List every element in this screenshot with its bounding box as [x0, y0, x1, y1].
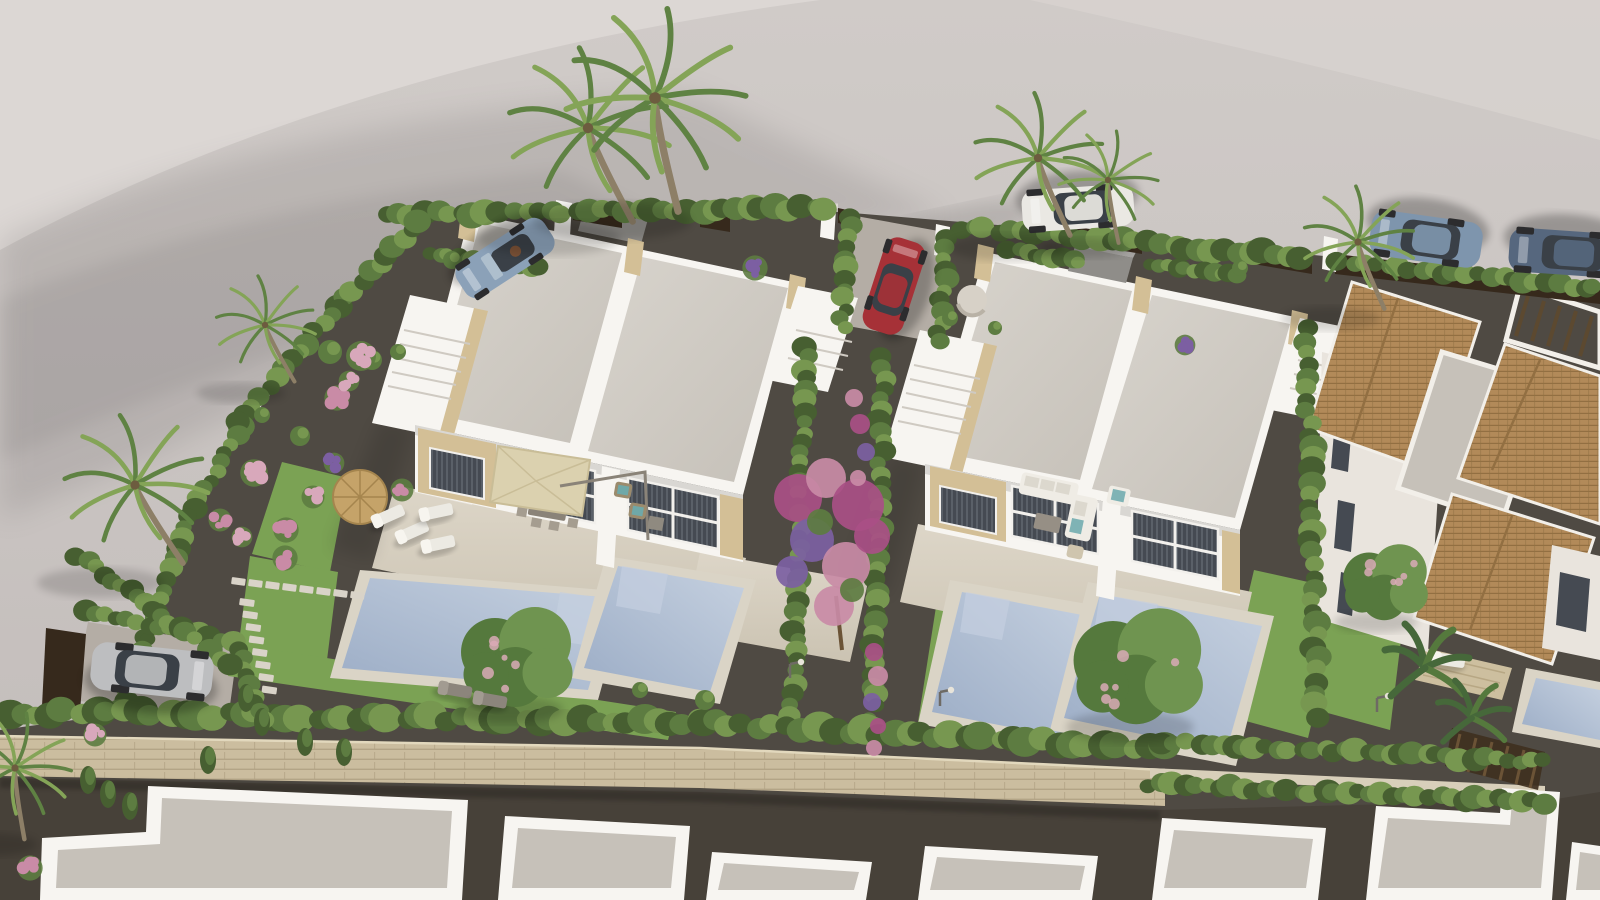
- hedge-bush: [368, 704, 402, 733]
- bougainvillea-bloom: [854, 518, 890, 554]
- flower-bloom: [750, 264, 760, 274]
- tree-blossom: [482, 667, 494, 679]
- flower-bloom: [304, 488, 312, 496]
- palm-shadow: [1282, 307, 1381, 330]
- bougainvillea-bloom: [868, 666, 888, 686]
- bottom-house-roof-inner: [1164, 830, 1313, 888]
- bush-highlight: [948, 311, 957, 320]
- bougainvillea-bloom: [807, 509, 833, 535]
- hedge-bush: [1305, 556, 1324, 572]
- palm-shadow: [197, 383, 285, 404]
- car-wheel: [1513, 265, 1531, 273]
- flower-bloom: [364, 346, 376, 358]
- flower-bloom: [395, 483, 404, 492]
- chair-cushion: [617, 485, 629, 496]
- dining-chair: [567, 518, 578, 529]
- bush-highlight: [298, 428, 309, 439]
- flower-bloom: [324, 452, 334, 462]
- cypress-highlight: [85, 767, 95, 785]
- car-roof: [1411, 223, 1453, 256]
- aerial-render: [0, 0, 1600, 900]
- bougainvillea-bloom: [857, 443, 875, 461]
- tree-canopy: [1345, 578, 1379, 612]
- hedge-bush: [1534, 752, 1551, 766]
- cypress-highlight: [127, 793, 137, 811]
- lamp-head: [948, 687, 954, 693]
- tree-blossom: [511, 660, 520, 669]
- flower-bloom: [350, 348, 364, 362]
- hedge-bush: [1532, 794, 1557, 815]
- bougainvillea-bloom: [850, 414, 870, 434]
- bougainvillea-bloom: [850, 470, 866, 486]
- med-window: [1556, 572, 1590, 632]
- palm-shadow: [1040, 238, 1128, 259]
- cube-side-table: [647, 516, 664, 531]
- bush-highlight: [703, 692, 714, 703]
- bougainvillea-bloom: [845, 389, 863, 407]
- hedge-bush: [46, 697, 76, 722]
- hedge-bush: [1276, 742, 1296, 759]
- hedge-bush: [797, 415, 812, 428]
- flower-bloom: [29, 863, 39, 873]
- hedge-bush: [931, 333, 950, 349]
- cypress-highlight: [341, 739, 351, 757]
- hedge-bush: [810, 198, 837, 221]
- tree-blossom: [501, 685, 509, 693]
- car-wheel: [1026, 189, 1043, 197]
- hedge-bush: [403, 210, 431, 234]
- tree-blossom: [1112, 684, 1119, 691]
- hedge-bush: [963, 722, 996, 750]
- flower-bloom: [276, 557, 289, 570]
- chair-cushion: [632, 506, 644, 517]
- hedge-bush: [1273, 779, 1299, 801]
- car-hood-highlight: [1518, 236, 1529, 263]
- cypress-highlight: [302, 729, 312, 747]
- flower-bloom: [18, 864, 27, 873]
- bougainvillea-bloom: [863, 693, 881, 711]
- palm-shadow: [532, 202, 692, 240]
- bottom-house-roof-inner: [512, 828, 676, 888]
- pool-steps: [616, 566, 668, 614]
- tree-blossom: [1109, 698, 1120, 709]
- flower-bloom: [314, 486, 324, 496]
- dining-chair: [531, 517, 542, 528]
- flower-bloom: [1177, 342, 1188, 353]
- hedge-bush: [831, 287, 854, 307]
- car-wheel: [1516, 226, 1534, 234]
- facade-sandstone-panel: [720, 494, 743, 560]
- bougainvillea-bloom: [840, 578, 864, 602]
- bougainvillea-bloom: [866, 740, 882, 756]
- cypress-highlight: [259, 709, 269, 727]
- tree-blossom: [1400, 573, 1407, 580]
- flower-bloom: [94, 727, 100, 733]
- hedge-bush: [838, 321, 853, 334]
- hedge-bush: [1286, 247, 1314, 270]
- bush-highlight: [993, 322, 1001, 330]
- tree-canopy: [523, 648, 573, 698]
- hedge-bush: [187, 631, 203, 644]
- bougainvillea-bloom: [870, 718, 886, 734]
- flower-bloom: [277, 521, 285, 529]
- tree-blossom: [502, 655, 508, 661]
- flower-bloom: [209, 512, 220, 523]
- flower-bloom: [327, 386, 340, 399]
- bush-highlight: [1238, 261, 1247, 270]
- car-roof: [1553, 239, 1595, 268]
- flower-bloom: [221, 514, 232, 525]
- flower-bloom: [255, 471, 269, 485]
- hedge-bush: [1306, 708, 1329, 728]
- flower-bloom: [338, 381, 349, 392]
- bush-highlight: [327, 342, 340, 355]
- aerial-render-svg: [0, 0, 1600, 900]
- hedge-bush: [217, 654, 243, 676]
- tree-blossom: [489, 641, 499, 651]
- dining-chair: [548, 521, 559, 532]
- tree-blossom: [1410, 560, 1418, 568]
- flower-bloom: [244, 468, 253, 477]
- tree-blossom: [1117, 650, 1129, 662]
- cypress-highlight: [105, 781, 115, 799]
- flower-bloom: [241, 531, 250, 540]
- bush-highlight: [396, 345, 405, 354]
- tree-blossom: [1171, 658, 1179, 666]
- tree-blossom: [1100, 683, 1108, 691]
- cypress-highlight: [243, 685, 253, 703]
- flower-bloom: [284, 520, 298, 534]
- facade-sandstone-panel: [1222, 530, 1240, 594]
- bush-highlight: [260, 408, 269, 417]
- lamp-head: [798, 659, 804, 665]
- car-roof: [124, 654, 168, 687]
- car-hood-highlight: [1030, 198, 1041, 224]
- car-wheel: [1029, 225, 1046, 233]
- palm-shadow: [37, 568, 164, 598]
- bougainvillea-bloom: [776, 556, 808, 588]
- bush-highlight: [638, 683, 647, 692]
- bougainvillea-bloom: [865, 643, 883, 661]
- bottom-house-roof-inner: [1576, 852, 1600, 890]
- cypress-highlight: [205, 747, 215, 765]
- pool-steps: [960, 592, 1010, 640]
- tree-blossom: [1365, 559, 1376, 570]
